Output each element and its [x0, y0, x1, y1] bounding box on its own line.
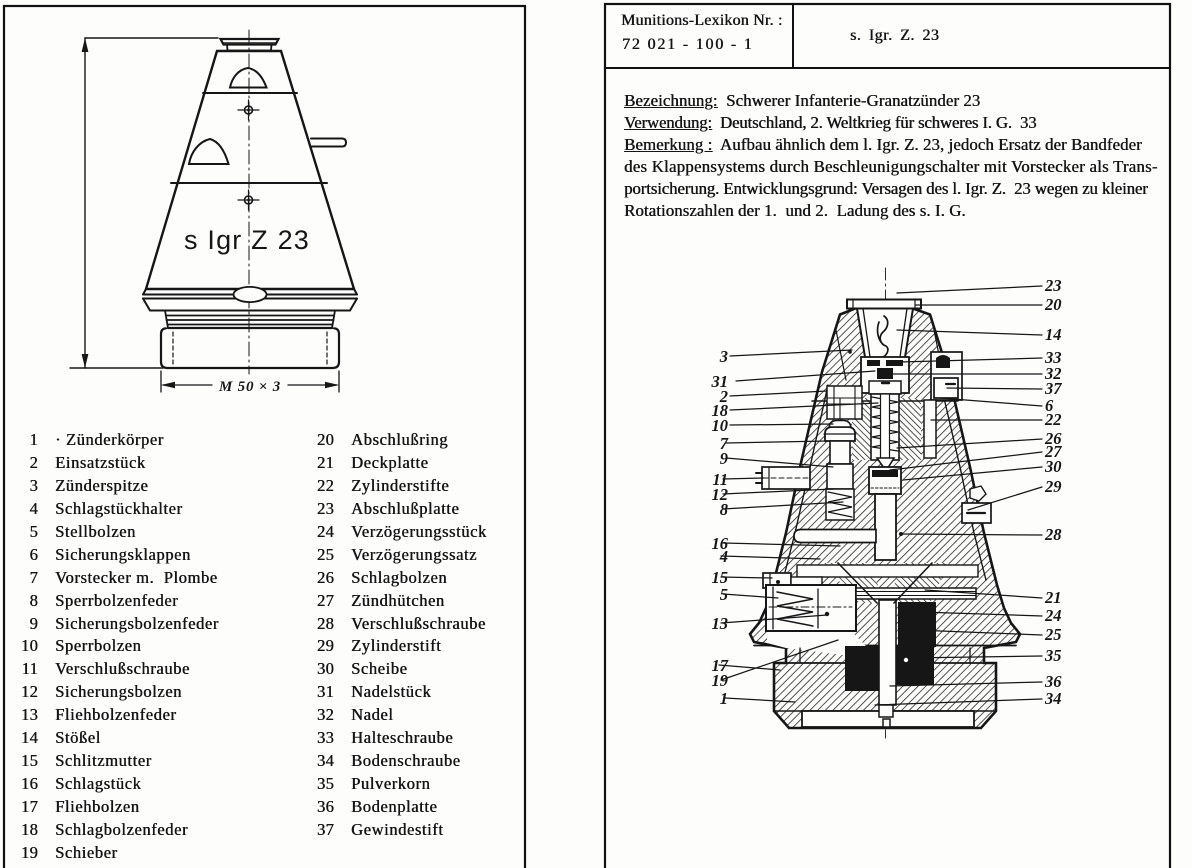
svg-text:13: 13: [712, 614, 729, 633]
svg-text:28: 28: [1044, 525, 1062, 544]
svg-text:3: 3: [719, 347, 728, 366]
svg-text:M 50 × 3: M 50 × 3: [218, 379, 281, 395]
svg-text:21: 21: [1044, 588, 1062, 607]
svg-text:25: 25: [1044, 625, 1062, 644]
svg-text:14: 14: [1045, 325, 1062, 344]
svg-text:10: 10: [712, 416, 729, 435]
svg-text:4: 4: [719, 547, 728, 566]
svg-text:1: 1: [720, 689, 728, 708]
svg-text:24: 24: [1044, 606, 1062, 625]
svg-text:8: 8: [720, 500, 728, 519]
svg-text:30: 30: [1044, 457, 1062, 476]
svg-text:35: 35: [1044, 646, 1062, 665]
svg-text:s Igr Z 23: s Igr Z 23: [184, 225, 310, 255]
svg-text:22: 22: [1044, 410, 1062, 429]
svg-text:34: 34: [1044, 689, 1062, 708]
svg-text:23: 23: [1044, 276, 1062, 295]
svg-text:19: 19: [712, 671, 729, 690]
svg-text:9: 9: [720, 449, 728, 468]
svg-text:5: 5: [720, 585, 728, 604]
svg-text:29: 29: [1044, 477, 1062, 496]
svg-text:90,8: 90,8: [71, 192, 90, 222]
svg-text:20: 20: [1044, 295, 1062, 314]
